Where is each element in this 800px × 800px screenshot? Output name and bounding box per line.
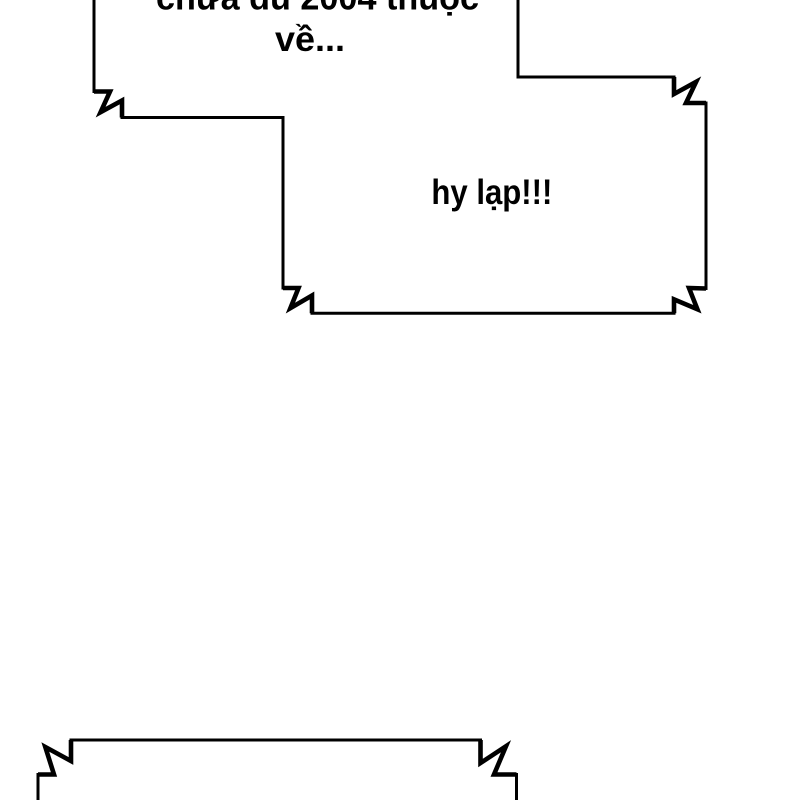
svg-text:hy lạp!!!: hy lạp!!! [431, 173, 552, 212]
svg-text:về...: về... [275, 20, 345, 59]
svg-text:chưa đủ 2004 thuộc: chưa đủ 2004 thuộc [156, 0, 479, 18]
